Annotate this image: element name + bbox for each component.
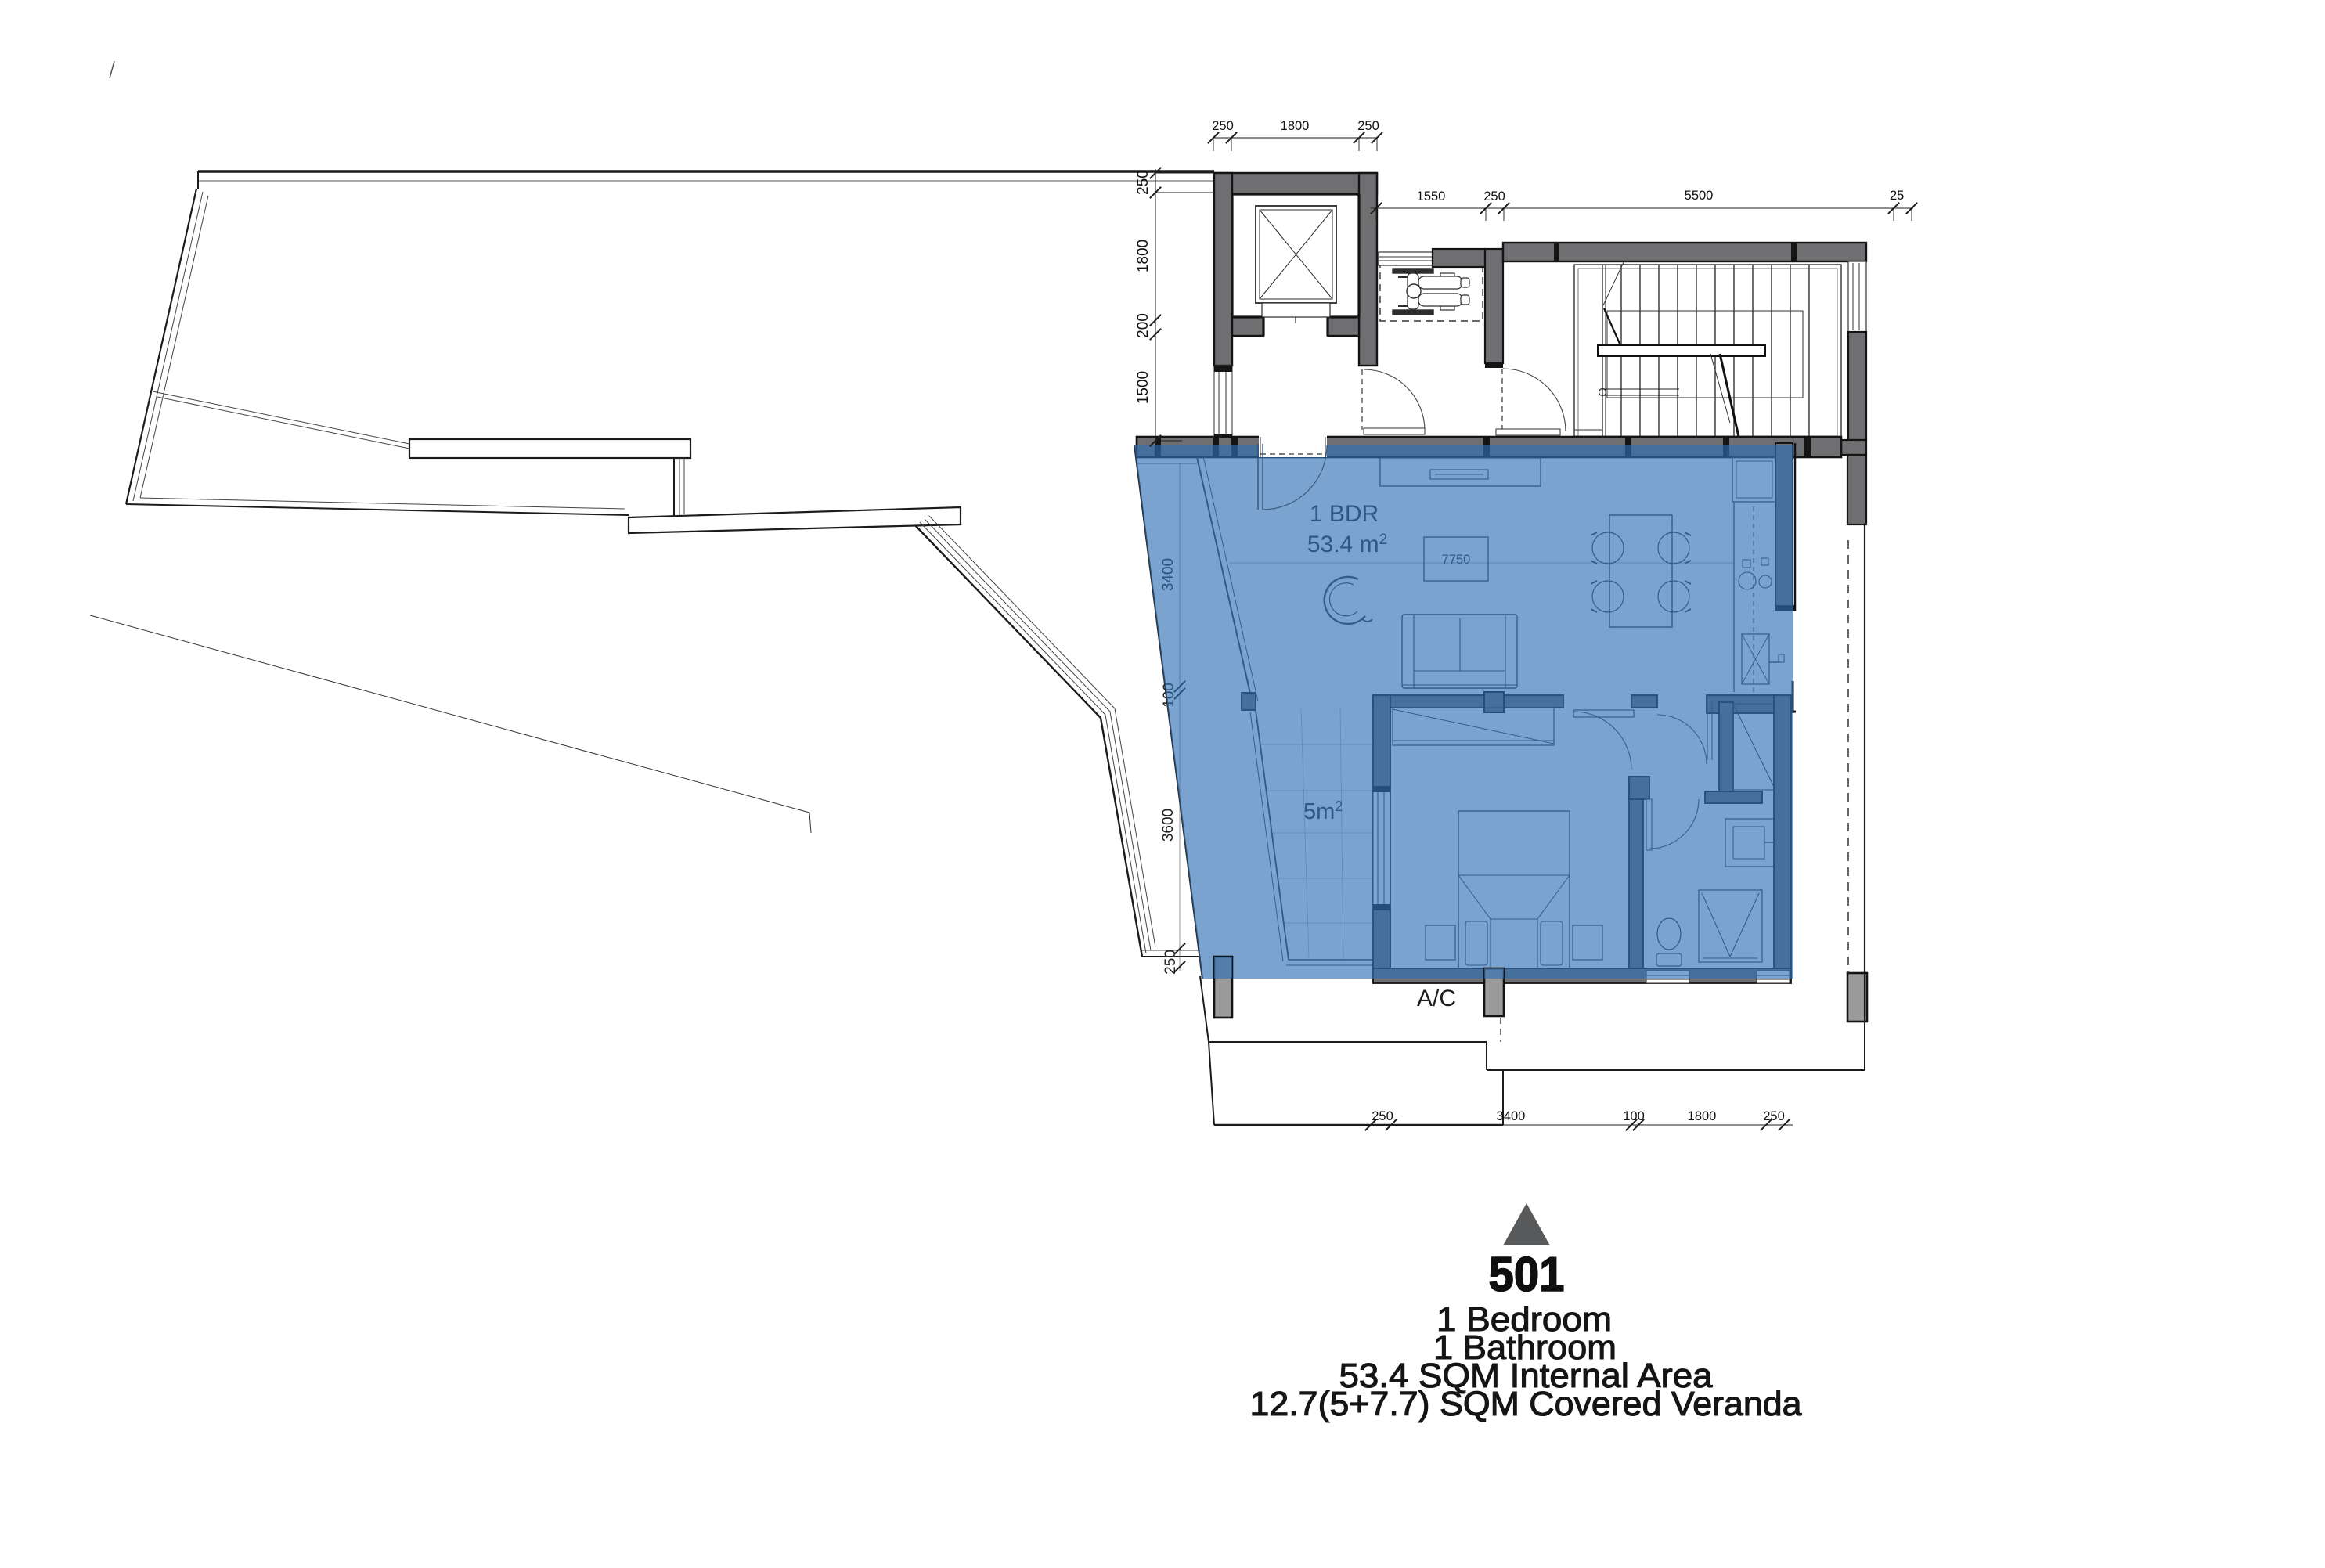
svg-text:1500: 1500 bbox=[1135, 371, 1152, 404]
svg-text:200: 200 bbox=[1135, 313, 1152, 338]
svg-text:250: 250 bbox=[1162, 950, 1179, 975]
svg-text:250: 250 bbox=[1212, 119, 1234, 133]
svg-text:3400: 3400 bbox=[1497, 1109, 1526, 1123]
svg-text:1800: 1800 bbox=[1281, 119, 1310, 133]
svg-text:A/C: A/C bbox=[1417, 986, 1456, 1011]
svg-text:5500: 5500 bbox=[1685, 189, 1714, 203]
svg-text:250: 250 bbox=[1357, 119, 1379, 133]
svg-text:501: 501 bbox=[1489, 1248, 1565, 1302]
svg-text:12.7(5+7.7) SQM Covered Verand: 12.7(5+7.7) SQM Covered Veranda bbox=[1250, 1385, 1803, 1423]
svg-text:250: 250 bbox=[1483, 189, 1505, 204]
svg-text:250: 250 bbox=[1763, 1109, 1785, 1123]
svg-text:250: 250 bbox=[1372, 1109, 1393, 1123]
svg-text:100: 100 bbox=[1623, 1109, 1645, 1123]
svg-text:1800: 1800 bbox=[1688, 1109, 1717, 1123]
svg-text:1550: 1550 bbox=[1417, 189, 1446, 204]
svg-text:1800: 1800 bbox=[1135, 240, 1152, 272]
svg-text:25: 25 bbox=[1890, 189, 1904, 203]
svg-text:3600: 3600 bbox=[1160, 809, 1177, 842]
svg-text:250: 250 bbox=[1135, 170, 1152, 195]
